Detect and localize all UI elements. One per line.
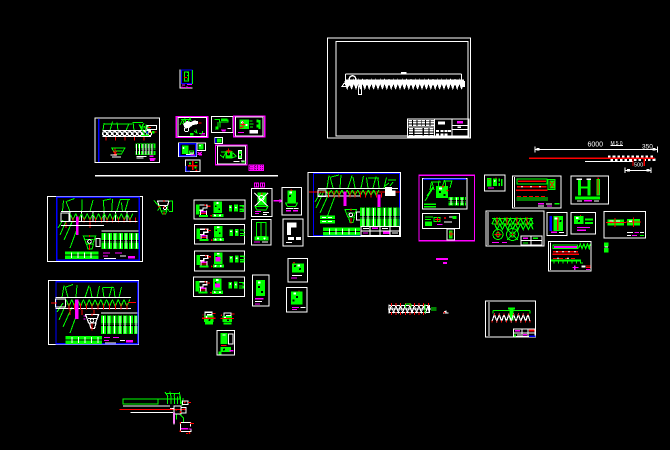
svg-text:M50: M50	[611, 141, 623, 147]
svg-text:500: 500	[634, 163, 643, 169]
svg-text:6000: 6000	[588, 142, 604, 149]
